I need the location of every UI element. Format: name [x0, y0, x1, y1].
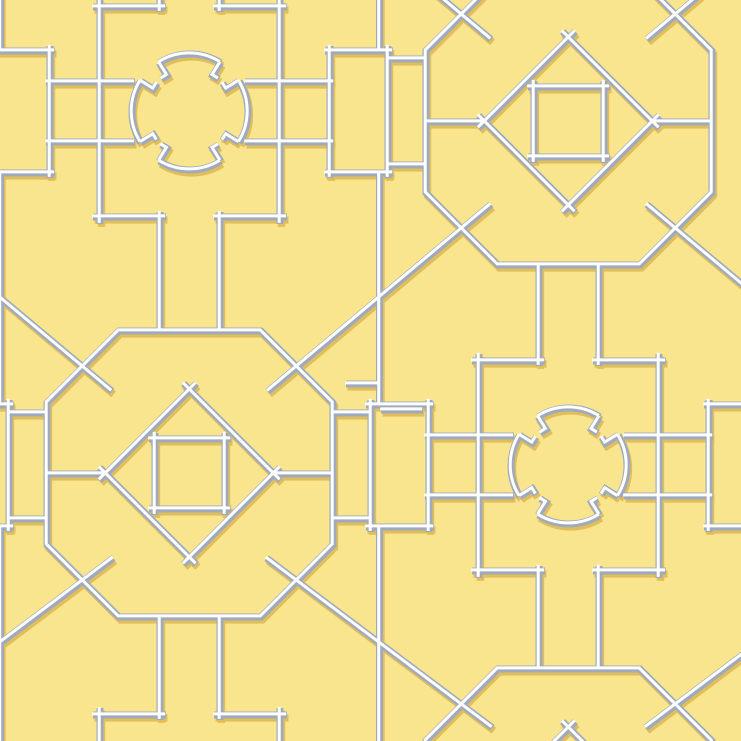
trellis-pattern-host: [0, 0, 741, 741]
trellis-lattice-pattern: [0, 0, 741, 741]
wallpaper-swatch: [0, 0, 741, 741]
wallpaper-background: [0, 0, 741, 741]
